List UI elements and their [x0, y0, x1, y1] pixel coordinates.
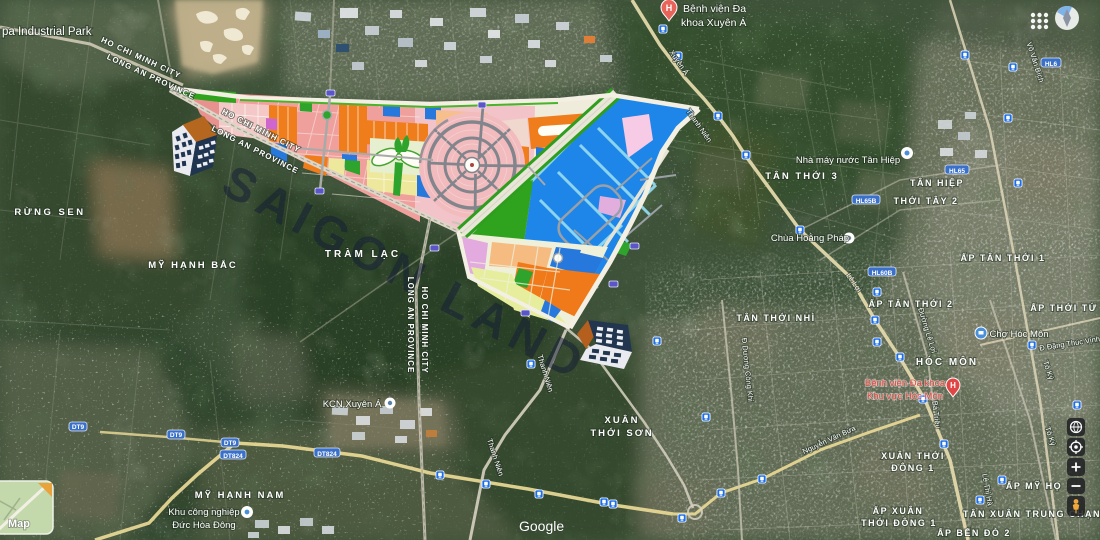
svg-text:LONG AN PROVINCE: LONG AN PROVINCE — [406, 277, 415, 374]
svg-text:H: H — [950, 381, 956, 390]
svg-text:HL6: HL6 — [1045, 61, 1058, 68]
svg-text:ẤP TÂN THỚI 2: ẤP TÂN THỚI 2 — [868, 298, 953, 309]
svg-text:ẤP BẾN ĐÒ 2: ẤP BẾN ĐÒ 2 — [937, 527, 1011, 538]
svg-text:Nhà máy nước Tân Hiệp: Nhà máy nước Tân Hiệp — [796, 155, 900, 166]
svg-text:HL65B: HL65B — [856, 198, 877, 205]
svg-text:HL65: HL65 — [949, 168, 965, 175]
svg-text:ẤP TÂN THỚI 1: ẤP TÂN THỚI 1 — [960, 252, 1045, 263]
svg-text:ẤP THỚI TỨ: ẤP THỚI TỨ — [1030, 302, 1097, 313]
svg-text:THỚI SƠN: THỚI SƠN — [590, 427, 653, 439]
svg-text:MỸ HẠNH BẮC: MỸ HẠNH BẮC — [148, 260, 238, 271]
svg-text:ẤP MỸ HỌ: ẤP MỸ HỌ — [1006, 481, 1062, 491]
svg-text:DT9: DT9 — [224, 440, 237, 447]
svg-text:RỪNG SEN: RỪNG SEN — [14, 206, 85, 218]
svg-text:DT824: DT824 — [317, 451, 337, 458]
svg-text:XUÂN: XUÂN — [605, 414, 640, 426]
svg-text:Khu công nghiệp: Khu công nghiệp — [168, 507, 239, 518]
svg-text:Chợ Hóc Môn: Chợ Hóc Môn — [989, 329, 1048, 340]
svg-text:Bệnh viện Đa khoa: Bệnh viện Đa khoa — [865, 378, 946, 389]
svg-text:Chùa Hoằng Pháp: Chùa Hoằng Pháp — [771, 233, 849, 244]
svg-text:DT824: DT824 — [223, 453, 243, 460]
svg-text:HO CHI MINH CITY: HO CHI MINH CITY — [420, 286, 429, 373]
svg-text:TÂN THỚI 3: TÂN THỚI 3 — [765, 170, 839, 182]
svg-text:TRÀM LẠC: TRÀM LẠC — [325, 247, 401, 260]
svg-text:khoa Xuyên Á: khoa Xuyên Á — [681, 16, 746, 29]
svg-text:ĐÔNG 1: ĐÔNG 1 — [891, 462, 935, 473]
svg-text:THỚI TÂY 2: THỚI TÂY 2 — [893, 195, 958, 206]
svg-text:Đức Hòa Đông: Đức Hòa Đông — [172, 520, 235, 531]
svg-text:TÂN HIỆP: TÂN HIỆP — [910, 177, 964, 188]
svg-text:KCN Xuyên Á: KCN Xuyên Á — [323, 399, 382, 410]
svg-text:DT9: DT9 — [170, 432, 183, 439]
svg-text:Bệnh viện Đa: Bệnh viện Đa — [683, 3, 746, 15]
svg-text:MỸ HẠNH NAM: MỸ HẠNH NAM — [195, 490, 286, 501]
svg-text:XUÂN THỚI: XUÂN THỚI — [881, 450, 945, 461]
svg-text:Google: Google — [519, 518, 564, 534]
svg-text:HL60B: HL60B — [872, 270, 893, 277]
svg-text:pa Industrial Park: pa Industrial Park — [2, 26, 92, 38]
svg-text:ẤP XUÂN: ẤP XUÂN — [873, 505, 924, 516]
svg-text:DT9: DT9 — [72, 424, 85, 431]
svg-text:Map: Map — [8, 518, 30, 530]
svg-text:HÓC MÔN: HÓC MÔN — [916, 355, 978, 368]
svg-text:THỚI ĐÔNG 1: THỚI ĐÔNG 1 — [861, 517, 937, 528]
svg-text:H: H — [666, 3, 673, 13]
svg-text:TÂN THỚI NHÌ: TÂN THỚI NHÌ — [736, 312, 815, 323]
